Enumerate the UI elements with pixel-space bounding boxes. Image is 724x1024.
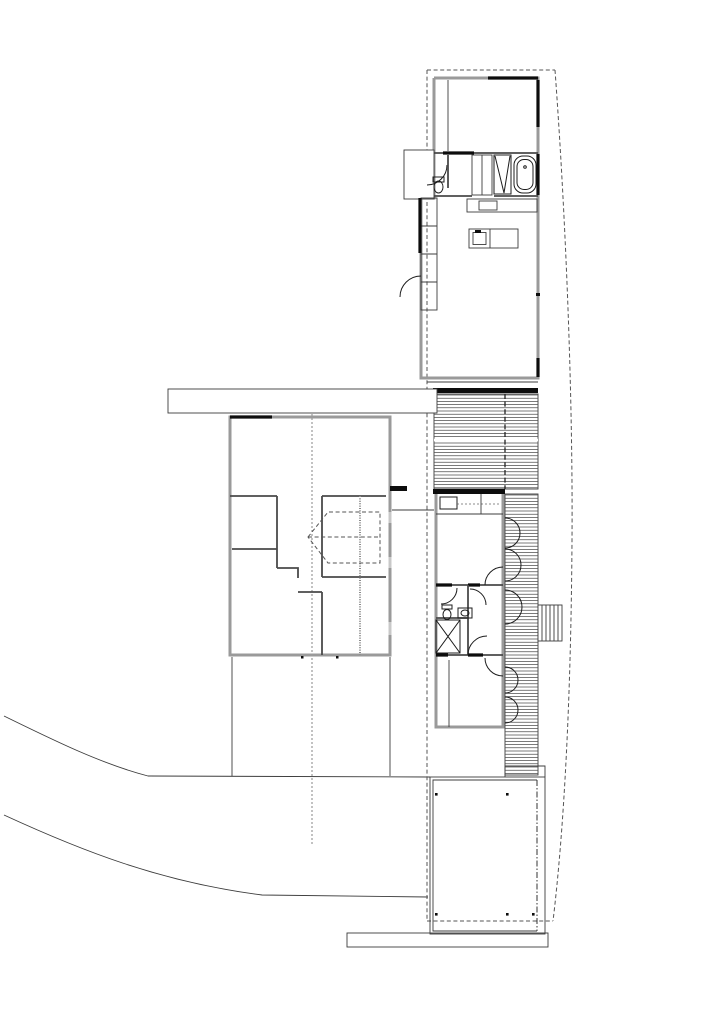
lower-terrace bbox=[347, 766, 548, 947]
wc2-door-arc bbox=[441, 588, 457, 604]
terrace-inner bbox=[433, 780, 537, 931]
threshold-bar bbox=[433, 388, 538, 393]
terrace-step bbox=[347, 933, 548, 947]
ground-path-upper bbox=[4, 716, 430, 777]
survey-dot-b bbox=[336, 656, 339, 659]
left-wing bbox=[168, 389, 437, 659]
bed1-door-arc bbox=[485, 567, 503, 585]
survey-dot-a bbox=[301, 656, 304, 659]
counter-sink bbox=[479, 201, 497, 210]
walkway-band bbox=[168, 389, 437, 413]
post-ne bbox=[506, 793, 509, 796]
island-sink bbox=[473, 233, 486, 245]
threshold-middle bbox=[433, 489, 505, 494]
bathtub-inner bbox=[517, 160, 533, 190]
shower-upper-glass bbox=[495, 156, 510, 193]
deck-door-arc-2 bbox=[505, 549, 521, 581]
floor-plan-page bbox=[0, 0, 724, 1024]
bathtub-drain bbox=[524, 166, 527, 169]
hall-door-arc-a bbox=[470, 589, 486, 605]
middle-pavilion bbox=[392, 489, 505, 727]
deck-door-arc-1 bbox=[505, 518, 520, 548]
west-door-arc bbox=[400, 276, 421, 297]
deck-side-outline bbox=[505, 494, 538, 775]
ground-path-lower bbox=[4, 815, 428, 897]
kitchen-counter bbox=[467, 199, 537, 212]
upper-pavilion bbox=[400, 78, 540, 393]
entry-porch bbox=[404, 150, 434, 199]
west-closet-dividers bbox=[421, 226, 437, 282]
island-faucet bbox=[475, 230, 481, 233]
hall-door-arc-b bbox=[468, 636, 487, 655]
interior-walls-left bbox=[230, 496, 386, 655]
site bbox=[4, 390, 430, 897]
shower-mid-x bbox=[436, 620, 460, 653]
terrace-outer bbox=[430, 777, 545, 934]
floor-plan-drawing bbox=[0, 0, 724, 1024]
window-tick-east bbox=[536, 293, 540, 296]
kitchenette-appliance bbox=[440, 497, 457, 509]
bed2-door-arc bbox=[485, 658, 503, 676]
toilet-tank-mid bbox=[442, 605, 452, 609]
roof-edge-east-curved bbox=[553, 70, 572, 921]
deck-side-boards bbox=[505, 495, 538, 773]
wall-outline-left bbox=[230, 417, 390, 655]
deck-upper-boards bbox=[434, 395, 538, 488]
post-sw bbox=[435, 913, 438, 916]
wall-flag bbox=[390, 486, 407, 491]
post-nw bbox=[435, 793, 438, 796]
roof-outline bbox=[427, 70, 572, 921]
post-s bbox=[506, 913, 509, 916]
wall-outline-upper bbox=[421, 78, 538, 378]
post-se bbox=[532, 913, 535, 916]
